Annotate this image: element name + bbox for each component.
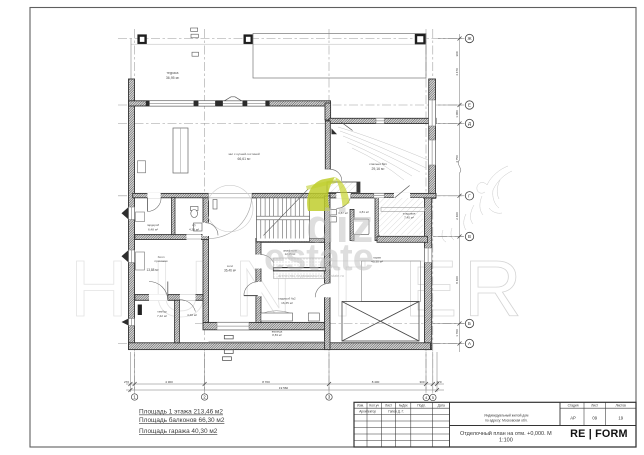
svg-text:гардероб №2: гардероб №2 xyxy=(278,297,296,301)
svg-text:Кол.уч: Кол.уч xyxy=(369,403,379,407)
svg-text:АР: АР xyxy=(570,416,576,421)
svg-text:Б: Б xyxy=(468,321,471,326)
svg-text:16,35 м²: 16,35 м² xyxy=(281,301,293,305)
svg-text:RE | FORM: RE | FORM xyxy=(570,428,628,440)
svg-text:по адресу: Московская обл.: по адресу: Московская обл. xyxy=(485,418,528,422)
svg-text:1 700: 1 700 xyxy=(455,329,459,337)
svg-text:1:100: 1:100 xyxy=(499,438,513,444)
svg-text:зал с кухней-гостиной: зал с кухней-гостиной xyxy=(228,152,260,156)
svg-text:2 400: 2 400 xyxy=(455,212,459,220)
svg-text:Гапов Д. Г.: Гапов Д. Г. xyxy=(388,410,404,414)
svg-text:Подп.: Подп. xyxy=(417,403,426,407)
svg-text:H: H xyxy=(70,244,128,333)
svg-text:Индивидуальный жилой дом: Индивидуальный жилой дом xyxy=(484,414,529,418)
svg-text:Дата: Дата xyxy=(438,403,445,407)
svg-text:Архитектор: Архитектор xyxy=(359,410,376,414)
svg-text:66,61 м²: 66,61 м² xyxy=(238,157,252,161)
svg-text:270: 270 xyxy=(124,380,129,384)
svg-text:Площадь балконов 66,30 м2: Площадь балконов 66,30 м2 xyxy=(139,416,225,424)
svg-text:тамбур: тамбур xyxy=(157,310,167,314)
svg-text:4,38 м²: 4,38 м² xyxy=(189,228,199,232)
svg-text:А: А xyxy=(468,341,471,346)
svg-text:1 080: 1 080 xyxy=(455,110,459,118)
svg-text:агентство недвижимости diz-es: агентство недвижимости diz-estate.ru xyxy=(278,274,344,278)
svg-text:36,95 м²: 36,95 м² xyxy=(166,76,180,80)
svg-text:Е: Е xyxy=(468,103,471,108)
svg-text:с/у: с/у xyxy=(192,223,196,227)
svg-text:36,46 м²: 36,46 м² xyxy=(224,269,236,273)
svg-text:8 400: 8 400 xyxy=(455,276,459,284)
svg-text:гардероб: гардероб xyxy=(147,223,160,227)
svg-text:Лист: Лист xyxy=(385,403,392,407)
svg-text:19 560: 19 560 xyxy=(279,386,289,390)
svg-text:13,88 м²: 13,88 м² xyxy=(146,268,158,272)
svg-text:09: 09 xyxy=(592,416,597,421)
svg-text:терраса: терраса xyxy=(167,71,179,75)
svg-text:4 750: 4 750 xyxy=(455,155,459,163)
svg-text:Ж: Ж xyxy=(467,36,471,41)
svg-text:19: 19 xyxy=(618,416,623,421)
svg-text:4,48 м²: 4,48 м² xyxy=(187,313,197,317)
svg-text:прихожая: прихожая xyxy=(155,259,168,263)
svg-text:Площадь 1 этажа 213,46 м2: Площадь 1 этажа 213,46 м2 xyxy=(139,409,223,416)
svg-text:Листов: Листов xyxy=(616,403,627,407)
svg-text:R: R xyxy=(464,244,522,333)
svg-text:7,45 м²: 7,45 м² xyxy=(404,216,414,220)
svg-text:холл: холл xyxy=(227,264,234,268)
svg-text:4 470: 4 470 xyxy=(455,68,459,76)
svg-text:270: 270 xyxy=(436,380,441,384)
svg-text:4 300: 4 300 xyxy=(165,380,173,384)
svg-text:Стадия: Стадия xyxy=(568,403,579,407)
svg-text:7,42 м²: 7,42 м² xyxy=(157,314,167,318)
svg-text:300: 300 xyxy=(455,51,459,56)
svg-text:29,16 м²: 29,16 м² xyxy=(372,167,386,171)
svg-text:8 700: 8 700 xyxy=(262,380,270,384)
svg-text:спальня №1: спальня №1 xyxy=(369,162,387,166)
svg-text:Отделочный план на отм. +0,000: Отделочный план на отм. +0,000. М xyxy=(460,430,552,437)
svg-text:300: 300 xyxy=(419,380,424,384)
svg-text:estate: estate xyxy=(264,237,374,279)
svg-text:№Док: №Док xyxy=(399,403,408,407)
svg-text:Д: Д xyxy=(468,121,471,126)
svg-text:Лист: Лист xyxy=(591,403,598,407)
svg-text:Площадь гаража 40,30 м2: Площадь гаража 40,30 м2 xyxy=(139,428,218,435)
svg-text:6,48 м²: 6,48 м² xyxy=(148,228,158,232)
svg-text:8,83 м²: 8,83 м² xyxy=(272,333,281,337)
svg-text:Изм.: Изм. xyxy=(357,403,364,407)
svg-text:8 400: 8 400 xyxy=(372,380,380,384)
svg-text:В: В xyxy=(468,234,471,239)
